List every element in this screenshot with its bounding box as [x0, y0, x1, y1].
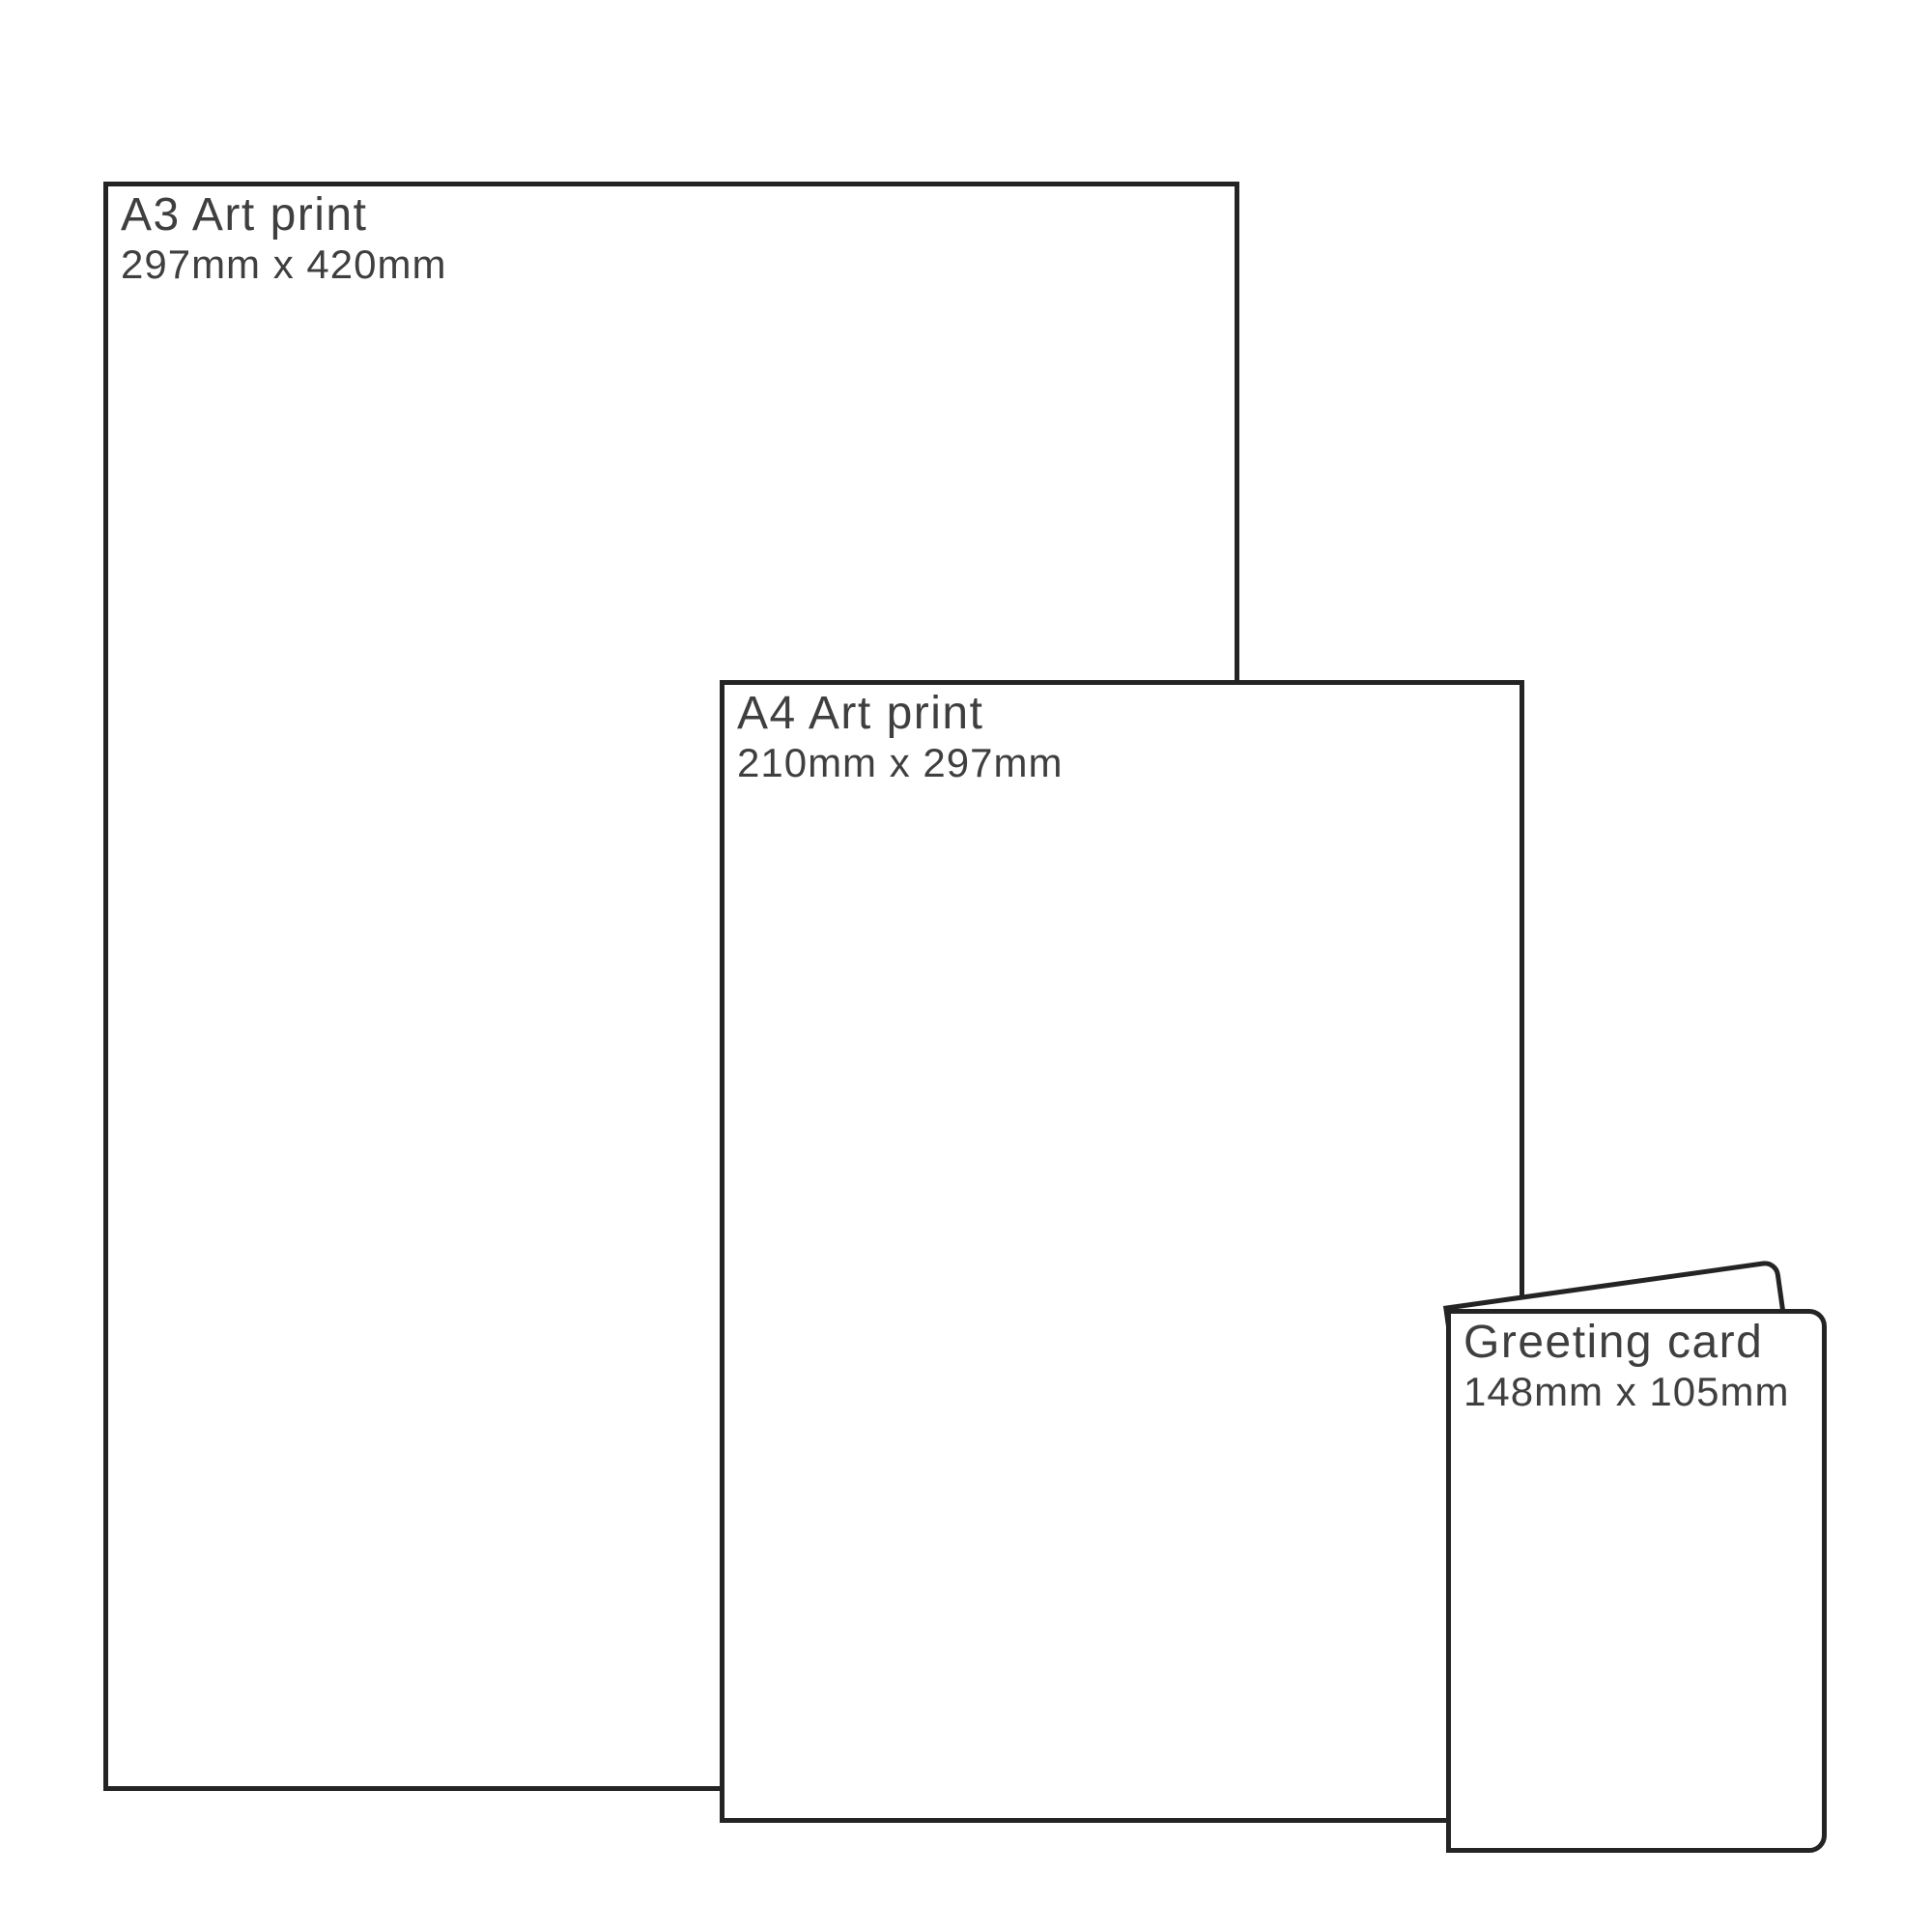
a4-print-size: 210mm x 297mm: [737, 739, 1063, 787]
greeting-card-label: Greeting card 148mm x 105mm: [1463, 1318, 1789, 1416]
a3-print-label: A3 Art print 297mm x 420mm: [121, 190, 446, 289]
a4-print-title: A4 Art print: [737, 689, 1063, 739]
greeting-card-size: 148mm x 105mm: [1463, 1368, 1789, 1416]
a4-print-label: A4 Art print 210mm x 297mm: [737, 689, 1063, 787]
greeting-card-title: Greeting card: [1463, 1318, 1789, 1368]
a4-print-outline: A4 Art print 210mm x 297mm: [720, 680, 1524, 1823]
a3-print-size: 297mm x 420mm: [121, 241, 446, 289]
a3-print-title: A3 Art print: [121, 190, 446, 241]
greeting-card-outline: Greeting card 148mm x 105mm: [1446, 1309, 1827, 1853]
size-comparison-diagram: A3 Art print 297mm x 420mm A4 Art print …: [0, 0, 1932, 1932]
